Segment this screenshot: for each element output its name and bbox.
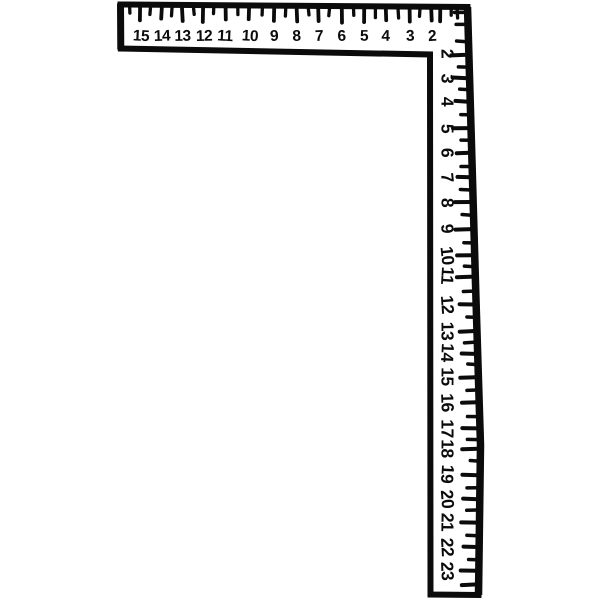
svg-text:11: 11: [217, 27, 234, 45]
svg-text:7: 7: [315, 28, 324, 45]
svg-text:8: 8: [437, 198, 457, 208]
svg-text:14: 14: [437, 343, 458, 363]
svg-text:2: 2: [437, 49, 457, 59]
svg-text:19: 19: [437, 464, 458, 484]
svg-text:10: 10: [437, 245, 459, 266]
svg-text:10: 10: [241, 27, 258, 45]
svg-text:5: 5: [360, 28, 369, 45]
svg-text:4: 4: [381, 28, 390, 45]
svg-text:5: 5: [437, 124, 457, 134]
svg-text:3: 3: [406, 28, 416, 45]
svg-text:11: 11: [437, 266, 458, 285]
svg-text:13: 13: [174, 28, 191, 45]
svg-text:6: 6: [437, 148, 457, 158]
svg-text:17: 17: [437, 419, 457, 438]
svg-text:23: 23: [437, 561, 458, 581]
svg-text:15: 15: [132, 27, 150, 45]
svg-text:16: 16: [437, 393, 458, 413]
svg-text:6: 6: [337, 28, 347, 45]
svg-text:12: 12: [196, 28, 213, 45]
svg-text:14: 14: [154, 28, 172, 46]
svg-text:12: 12: [437, 295, 458, 316]
svg-text:20: 20: [437, 489, 459, 510]
svg-text:15: 15: [437, 367, 457, 386]
svg-text:13: 13: [437, 322, 457, 341]
svg-text:21: 21: [437, 513, 457, 532]
svg-text:22: 22: [437, 537, 458, 557]
svg-text:4: 4: [438, 97, 458, 107]
svg-text:18: 18: [437, 439, 457, 458]
svg-text:2: 2: [427, 28, 436, 46]
